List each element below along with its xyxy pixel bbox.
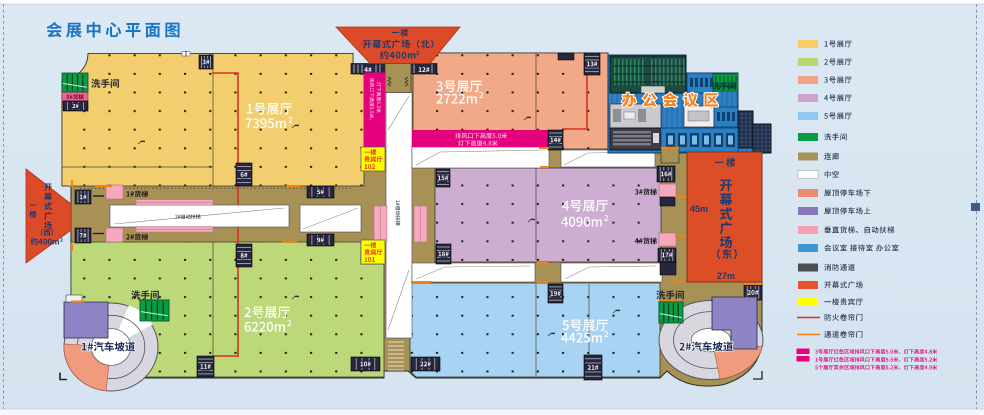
svg-text:45m: 45m [690, 204, 708, 214]
svg-text:27m: 27m [717, 271, 735, 281]
